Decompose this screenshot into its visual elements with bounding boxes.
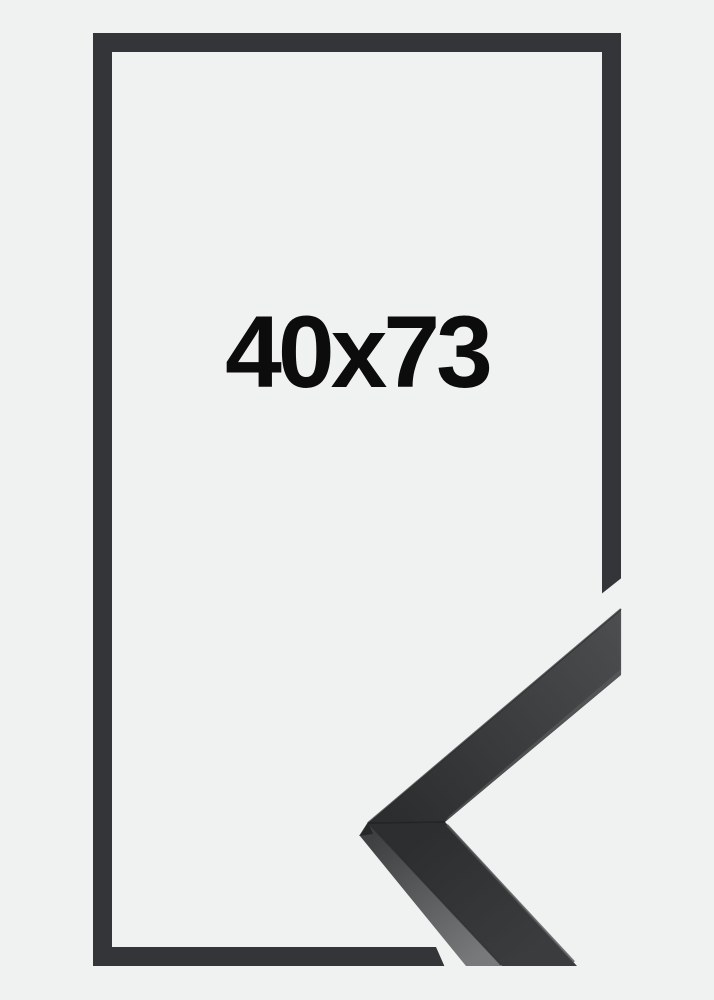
product-image: 40x73 [0, 0, 714, 1000]
frame-size-diagram: 40x73 [0, 0, 714, 1000]
sample-miter-seam [368, 822, 445, 823]
frame-size-label: 40x73 [225, 295, 490, 409]
